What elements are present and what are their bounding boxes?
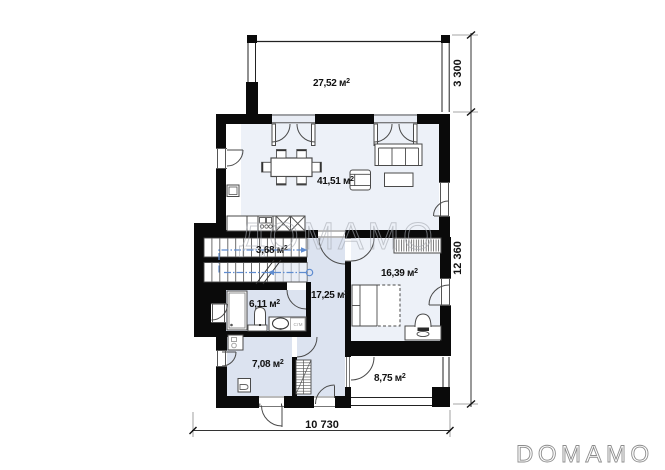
svg-text:7,08 м2: 7,08 м2 xyxy=(252,359,284,370)
svg-text:10 730: 10 730 xyxy=(305,419,339,431)
svg-text:41,51 м2: 41,51 м2 xyxy=(317,176,354,187)
svg-text:ДОМАМО: ДОМАМО xyxy=(239,216,437,258)
svg-text:6,11 м2: 6,11 м2 xyxy=(249,299,280,310)
svg-text:12 360: 12 360 xyxy=(452,241,464,275)
svg-text:3 300: 3 300 xyxy=(452,59,464,87)
svg-text:27,52 м2: 27,52 м2 xyxy=(313,78,350,89)
svg-text:СтМ: СтМ xyxy=(294,322,303,327)
svg-text:DOMAMO: DOMAMO xyxy=(516,441,654,468)
svg-text:16,39 м2: 16,39 м2 xyxy=(381,268,418,279)
svg-text:8,75 м2: 8,75 м2 xyxy=(374,373,406,384)
svg-text:17,25 м2: 17,25 м2 xyxy=(311,290,348,301)
